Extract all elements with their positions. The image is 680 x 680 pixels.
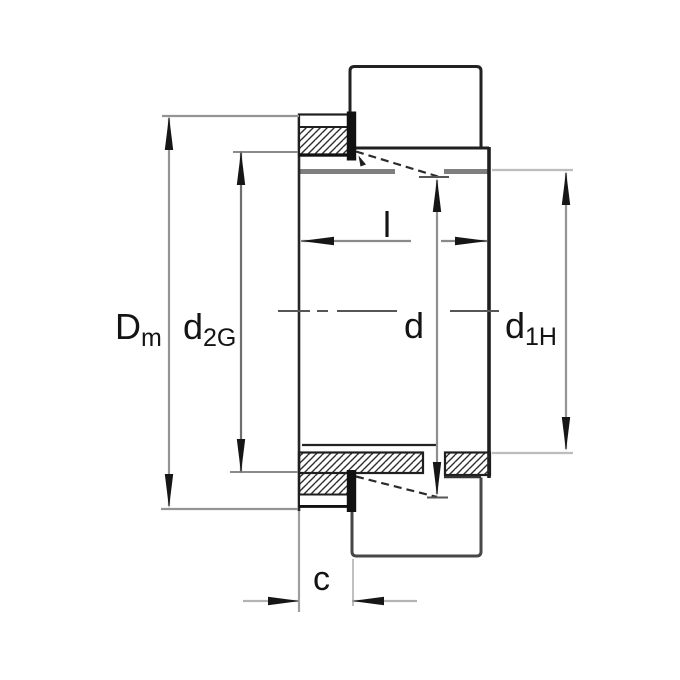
d2G-label: d2G bbox=[183, 306, 236, 352]
dimension-Dm: Dm bbox=[115, 116, 299, 509]
locknut-top-rect bbox=[350, 67, 481, 149]
dimension-c: c bbox=[243, 511, 417, 612]
d2G-arrow-up-icon bbox=[237, 151, 245, 185]
d-arrow-up-icon bbox=[433, 178, 441, 212]
Dm-arrow-down-icon bbox=[165, 474, 173, 508]
Dm-label: Dm bbox=[115, 306, 162, 352]
c-label: c bbox=[313, 560, 330, 598]
nut-hatch-top bbox=[300, 128, 347, 154]
lockwasher-nut-section-bottom bbox=[299, 470, 356, 512]
sleeve-taper-dashed-bottom bbox=[356, 477, 437, 498]
d1H-arrow-down-icon bbox=[562, 417, 570, 451]
nut-hatch-bottom bbox=[299, 473, 348, 495]
locknut-bottom-outline bbox=[352, 477, 481, 556]
dimension-l: l bbox=[301, 204, 488, 245]
washer-tab-bar-top bbox=[347, 112, 356, 161]
c-arrow-right-icon bbox=[268, 597, 300, 605]
lockwasher-nut-section-top bbox=[299, 112, 356, 161]
d1H-label: d1H bbox=[505, 305, 557, 351]
locknut-top-outline bbox=[350, 67, 481, 149]
c-arrow-left-icon bbox=[352, 597, 384, 605]
drawing-canvas: Dm d2G l d d1H bbox=[0, 0, 680, 680]
sleeve-section-hatch-right bbox=[445, 453, 490, 476]
washer-box-bottom bbox=[299, 495, 348, 507]
sleeve-body bbox=[298, 115, 490, 512]
d-arrow-down-icon bbox=[433, 462, 441, 496]
d1H-arrow-up-icon bbox=[562, 171, 570, 205]
washer-tab-bar-bottom bbox=[347, 470, 356, 512]
d-label: d bbox=[404, 305, 424, 346]
taper-tick-mark bbox=[359, 156, 367, 167]
dimension-d: d bbox=[404, 177, 449, 498]
l-arrow-right-icon bbox=[455, 237, 488, 245]
locknut-bottom-rect bbox=[352, 478, 481, 557]
d2G-arrow-down-icon bbox=[237, 439, 245, 473]
sleeve-section-hatch-left bbox=[299, 453, 423, 474]
l-arrow-left-icon bbox=[301, 237, 334, 245]
l-label: l bbox=[383, 204, 391, 245]
dimension-d1H: d1H bbox=[492, 170, 573, 453]
adapter-sleeve-technical-drawing: Dm d2G l d d1H bbox=[0, 0, 680, 680]
Dm-arrow-up-icon bbox=[165, 116, 173, 150]
